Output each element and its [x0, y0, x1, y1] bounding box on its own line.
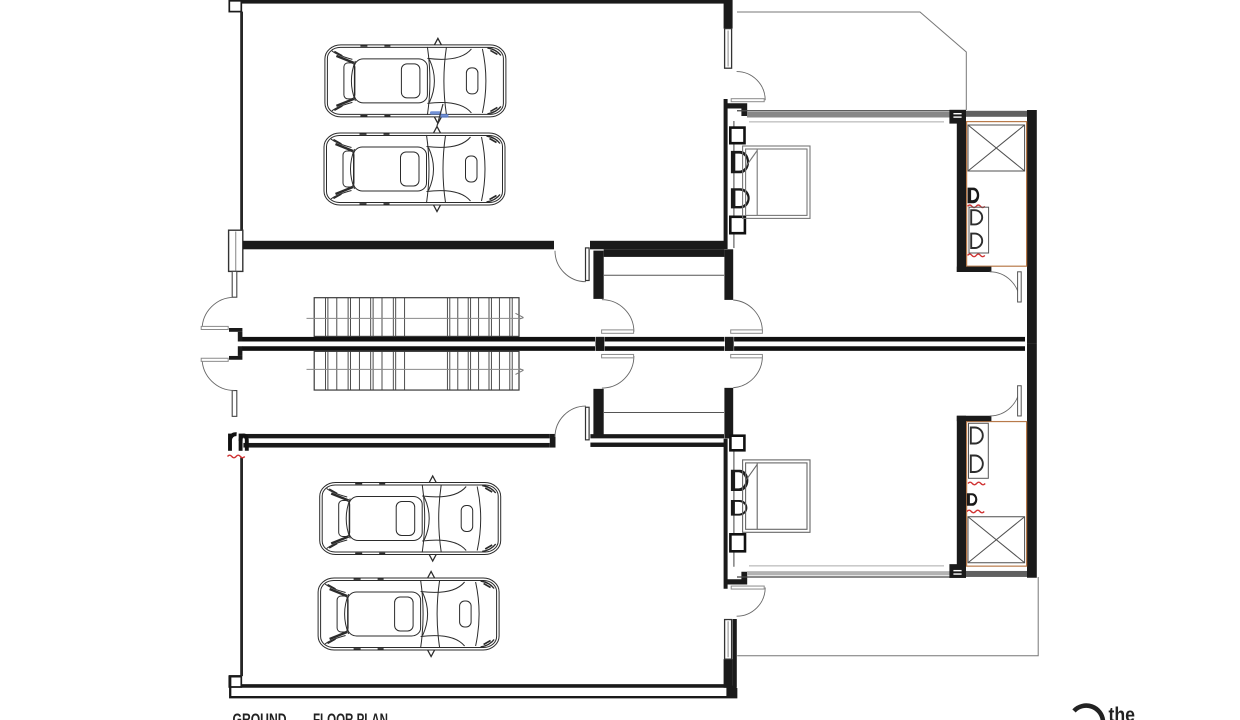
svg-text:GROUND: GROUND [233, 710, 287, 720]
svg-text:FLOOR PLAN: FLOOR PLAN [313, 710, 388, 720]
svg-text:the: the [1109, 705, 1136, 720]
